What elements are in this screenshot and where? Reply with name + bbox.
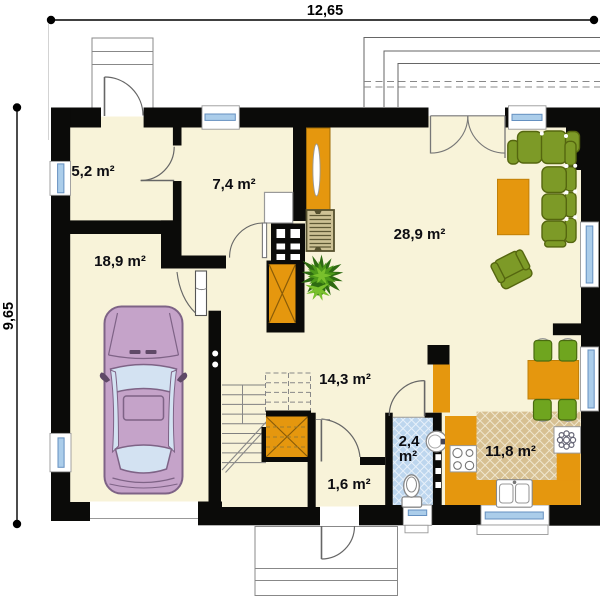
- svg-text:14,3 m²: 14,3 m²: [319, 371, 371, 388]
- svg-text:11,8 m²: 11,8 m²: [485, 443, 536, 460]
- svg-text:12,65: 12,65: [307, 3, 343, 19]
- svg-text:7,4 m²: 7,4 m²: [212, 176, 255, 193]
- svg-text:18,9 m²: 18,9 m²: [94, 253, 146, 270]
- svg-text:m²: m²: [399, 448, 417, 465]
- svg-text:1,6 m²: 1,6 m²: [327, 476, 370, 493]
- svg-text:5,2 m²: 5,2 m²: [71, 163, 114, 180]
- svg-text:9,65: 9,65: [1, 302, 17, 330]
- svg-text:28,9 m²: 28,9 m²: [394, 226, 446, 243]
